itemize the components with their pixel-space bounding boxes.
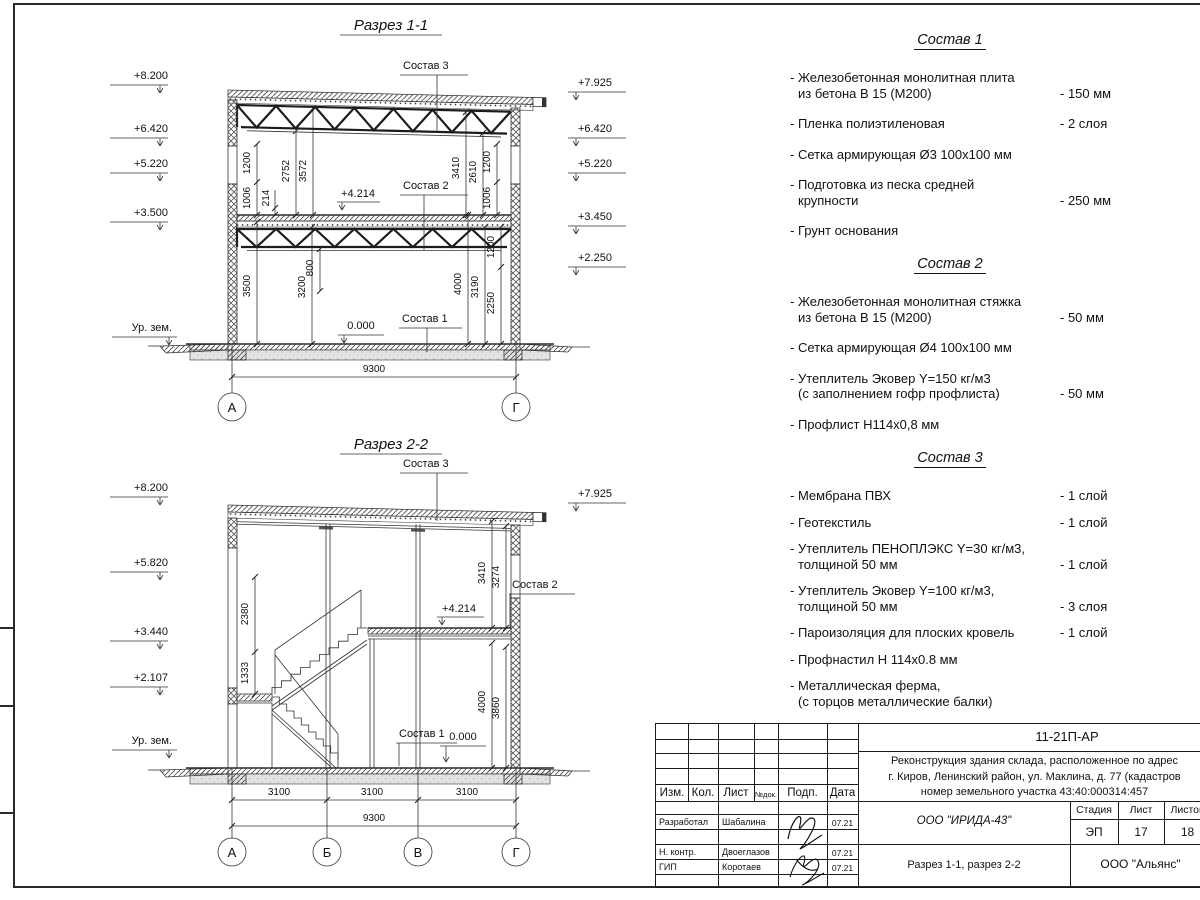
level-label: +4.214 (337, 188, 380, 210)
elevation-mark: +3.500 (110, 207, 168, 230)
svg-text:+8.200: +8.200 (134, 482, 168, 494)
rev-header-list: Лист (718, 787, 754, 799)
svg-text:Состав 2: Состав 2 (403, 180, 449, 192)
list-item: - Профнастил Н 114х0.8 мм (790, 652, 1200, 668)
stage-value: ЭП (1070, 825, 1118, 839)
section-1-1: Разрез 1-1 (110, 17, 626, 421)
roof-slab (228, 505, 546, 535)
list-item: - Грунт основания (790, 223, 1200, 239)
svg-text:+6.420: +6.420 (578, 123, 612, 135)
svg-text:3572: 3572 (298, 159, 309, 182)
svg-text:+2.107: +2.107 (134, 672, 168, 684)
elevation-mark: +3.440 (110, 626, 168, 649)
dim-vertical: 214 (261, 189, 278, 218)
svg-text:3410: 3410 (451, 156, 462, 179)
svg-text:Состав 1: Состав 1 (402, 313, 448, 325)
dim-vertical: 1200 2250 (486, 224, 504, 347)
svg-text:Ур. зем.: Ур. зем. (132, 322, 172, 334)
elevation-mark: +8.200 (110, 482, 168, 505)
svg-text:0.000: 0.000 (449, 731, 477, 743)
wall-right (511, 525, 520, 768)
floor-slab (368, 628, 511, 768)
ground-slab (148, 344, 590, 360)
sheet-title: Разрез 1-1, разрез 2-2 (858, 859, 1070, 871)
sign-date: 07.21 (827, 863, 858, 873)
sostav3-title: Состав 3 (790, 450, 1110, 466)
section-title: Разрез 2-2 (354, 436, 429, 453)
floor-slab (237, 215, 511, 227)
sign-date: 07.21 (827, 848, 858, 858)
design-org: ООО "ИРИДА-43" (858, 815, 1070, 827)
svg-text:Состав 2: Состав 2 (512, 579, 558, 591)
svg-text:3500: 3500 (242, 274, 253, 297)
svg-text:+3.440: +3.440 (134, 626, 168, 638)
dim-vertical: 4000 (453, 212, 471, 347)
svg-text:Состав 3: Состав 3 (403, 458, 449, 470)
elevation-mark: +5.220 (568, 158, 626, 181)
sostav3-list: Состав 3 - Мембрана ПВХ- 1 слой - Геотек… (790, 450, 1200, 720)
svg-text:3100: 3100 (361, 787, 384, 798)
level-label: 0.000 (440, 731, 486, 762)
svg-text:1200: 1200 (242, 151, 253, 174)
axis-bubble: Г (502, 838, 530, 866)
contractor-firm: ООО "Альянс" (1070, 857, 1200, 871)
svg-text:+7.925: +7.925 (578, 488, 612, 500)
elevation-mark: +2.250 (568, 252, 626, 275)
elevation-mark: +7.925 (568, 77, 626, 100)
svg-text:3100: 3100 (456, 787, 479, 798)
section-title: Разрез 1-1 (354, 17, 428, 34)
svg-text:+3.500: +3.500 (134, 207, 168, 219)
axis-bubble: Б (313, 838, 341, 866)
role-label: ГИП (659, 862, 718, 872)
title-block: Изм. Кол. Лист №док. Подп. Дата Разработ… (655, 723, 1200, 888)
level-label: +4.214 (437, 603, 484, 625)
dim-vertical: 3860 (491, 644, 509, 771)
elevation-mark: +5.220 (110, 158, 168, 181)
signer-name: Коротаев (722, 862, 778, 872)
list-item: - Пленка полиэтиленовая- 2 слоя (790, 116, 1200, 132)
role-label: Н. контр. (659, 847, 718, 857)
dim-vertical: 2752 (281, 128, 299, 218)
sheets-label: Листов (1164, 804, 1200, 816)
svg-text:3410: 3410 (477, 561, 488, 584)
list-item: - Утеплитель ПЕНОПЛЭКС Y=30 кг/м3, толщи… (790, 541, 1200, 572)
dim-vertical: 3500 (242, 219, 260, 347)
list-item: - Металлическая ферма, (с торцов металли… (790, 678, 1200, 709)
svg-text:3860: 3860 (491, 696, 502, 719)
dim-vertical: 1200 1006 (242, 141, 260, 218)
wall-right (511, 108, 520, 344)
rev-header-izm: Изм. (656, 787, 688, 799)
sostav1-title: Состав 1 (790, 32, 1110, 48)
list-item: - Железобетонная монолитная плита из бет… (790, 70, 1200, 101)
list-item: - Утеплитель Эковер Y=100 кг/м3, толщино… (790, 583, 1200, 614)
wall-left (228, 100, 237, 344)
floor-truss (237, 229, 511, 251)
list-item: - Профлист Н114х0,8 мм (790, 417, 1200, 433)
svg-text:Б: Б (323, 845, 332, 860)
elevation-mark: +3.450 (568, 211, 626, 234)
axis-bubble: Г (502, 393, 530, 421)
svg-text:+2.250: +2.250 (578, 252, 612, 264)
dim-vertical: 2380 1333 (240, 574, 258, 697)
list-item: - Железобетонная монолитная стяжка из бе… (790, 294, 1200, 325)
svg-text:+7.925: +7.925 (578, 77, 612, 89)
sostav2-title: Состав 2 (790, 256, 1110, 272)
list-item: - Утеплитель Эковер Y=150 кг/м3 (с запол… (790, 371, 1200, 402)
level-label: 0.000 (338, 320, 384, 343)
svg-text:А: А (228, 845, 237, 860)
svg-text:4000: 4000 (453, 272, 464, 295)
svg-text:3200: 3200 (297, 275, 308, 298)
sheet-label: Лист (1118, 804, 1164, 816)
sheets-total: 18 (1164, 825, 1200, 839)
elevation-mark: +5.820 (110, 557, 168, 580)
svg-text:+5.820: +5.820 (134, 557, 168, 569)
dim-vertical: 3274 (491, 523, 509, 631)
stage-label: Стадия (1070, 804, 1118, 816)
section-2-2: Разрез 2-2 (110, 436, 626, 866)
sheet-number: 17 (1118, 825, 1164, 839)
svg-text:3190: 3190 (470, 275, 481, 298)
sostav2-list: Состав 2 - Железобетонная монолитная стя… (790, 256, 1200, 447)
svg-text:Г: Г (512, 845, 519, 860)
signer-name: Двоеглазов (722, 847, 778, 857)
axis-bubble: В (404, 838, 432, 866)
axis-bubble: А (218, 838, 246, 866)
axis-bubble: А (218, 393, 246, 421)
svg-text:+4.214: +4.214 (442, 603, 476, 615)
svg-text:+4.214: +4.214 (341, 188, 375, 200)
svg-text:0.000: 0.000 (347, 320, 375, 332)
elevation-mark: +7.925 (568, 488, 626, 511)
svg-text:В: В (414, 845, 423, 860)
sign-date: 07.21 (827, 818, 858, 828)
svg-text:214: 214 (261, 189, 272, 206)
svg-text:9300: 9300 (363, 813, 386, 824)
svg-text:Ур. зем.: Ур. зем. (132, 735, 172, 747)
list-item: - Сетка армирующая Ø4 100х100 мм (790, 340, 1200, 356)
elevation-mark: +6.420 (110, 123, 168, 146)
doc-code: 11-21П-АР (858, 729, 1200, 744)
role-label: Разработал (659, 817, 718, 827)
elevation-mark: +2.107 (110, 672, 168, 695)
list-item: - Сетка армирующая Ø3 100х100 мм (790, 147, 1200, 163)
dim-vertical: 1200 1006 (482, 141, 500, 218)
svg-text:Состав 3: Состав 3 (403, 60, 449, 72)
project-description: Реконструкция здания склада, расположенн… (858, 754, 1200, 801)
signature-strokes (778, 801, 827, 886)
svg-text:1200: 1200 (482, 150, 493, 173)
svg-text:1200: 1200 (486, 235, 497, 258)
svg-text:+5.220: +5.220 (578, 158, 612, 170)
roof-truss (237, 105, 511, 137)
leader-sostav1: Состав 1 (396, 728, 457, 766)
svg-text:800: 800 (305, 259, 316, 276)
staircase (237, 590, 367, 768)
dim-vertical: 3410 (451, 109, 469, 218)
svg-text:1333: 1333 (240, 661, 251, 684)
signer-name: Шабалина (722, 817, 778, 827)
svg-text:Состав 1: Состав 1 (399, 728, 445, 740)
svg-text:+3.450: +3.450 (578, 211, 612, 223)
svg-text:3100: 3100 (268, 787, 291, 798)
svg-text:+6.420: +6.420 (134, 123, 168, 135)
svg-text:1006: 1006 (482, 186, 493, 209)
list-item: - Мембрана ПВХ- 1 слой (790, 488, 1200, 504)
svg-text:2752: 2752 (281, 159, 292, 182)
elevation-mark: +8.200 (110, 70, 168, 93)
svg-text:+8.200: +8.200 (134, 70, 168, 82)
ground-slab (148, 768, 590, 784)
rev-header-podp: Подп. (778, 787, 827, 799)
svg-text:3274: 3274 (491, 565, 502, 588)
svg-text:1006: 1006 (242, 186, 253, 209)
ground-level-mark: Ур. зем. (112, 322, 177, 345)
ground-level-mark: Ур. зем. (112, 735, 177, 758)
rev-header-data: Дата (827, 787, 858, 799)
list-item: - Пароизоляция для плоских кровель- 1 сл… (790, 625, 1200, 641)
svg-text:2380: 2380 (240, 602, 251, 625)
sostav1-list: Состав 1 - Железобетонная монолитная пли… (790, 32, 1200, 254)
svg-text:Г: Г (512, 400, 519, 415)
rev-header-ndok: №док. (754, 790, 778, 799)
svg-text:+5.220: +5.220 (134, 158, 168, 170)
wall-left (228, 518, 237, 768)
svg-text:2610: 2610 (468, 160, 479, 183)
svg-text:9300: 9300 (363, 364, 386, 375)
svg-text:4000: 4000 (477, 690, 488, 713)
list-item: - Геотекстиль- 1 слой (790, 515, 1200, 531)
drawing-sheet: { "razrez1": { "title": "Разрез 1-1", "m… (0, 0, 1200, 900)
svg-text:2250: 2250 (486, 291, 497, 314)
rev-header-kol: Кол. (688, 787, 718, 799)
elevation-mark: +6.420 (568, 123, 626, 146)
svg-text:А: А (228, 400, 237, 415)
sections-drawing: Разрез 1-1 (0, 0, 690, 900)
list-item: - Подготовка из песка средней крупности-… (790, 177, 1200, 208)
